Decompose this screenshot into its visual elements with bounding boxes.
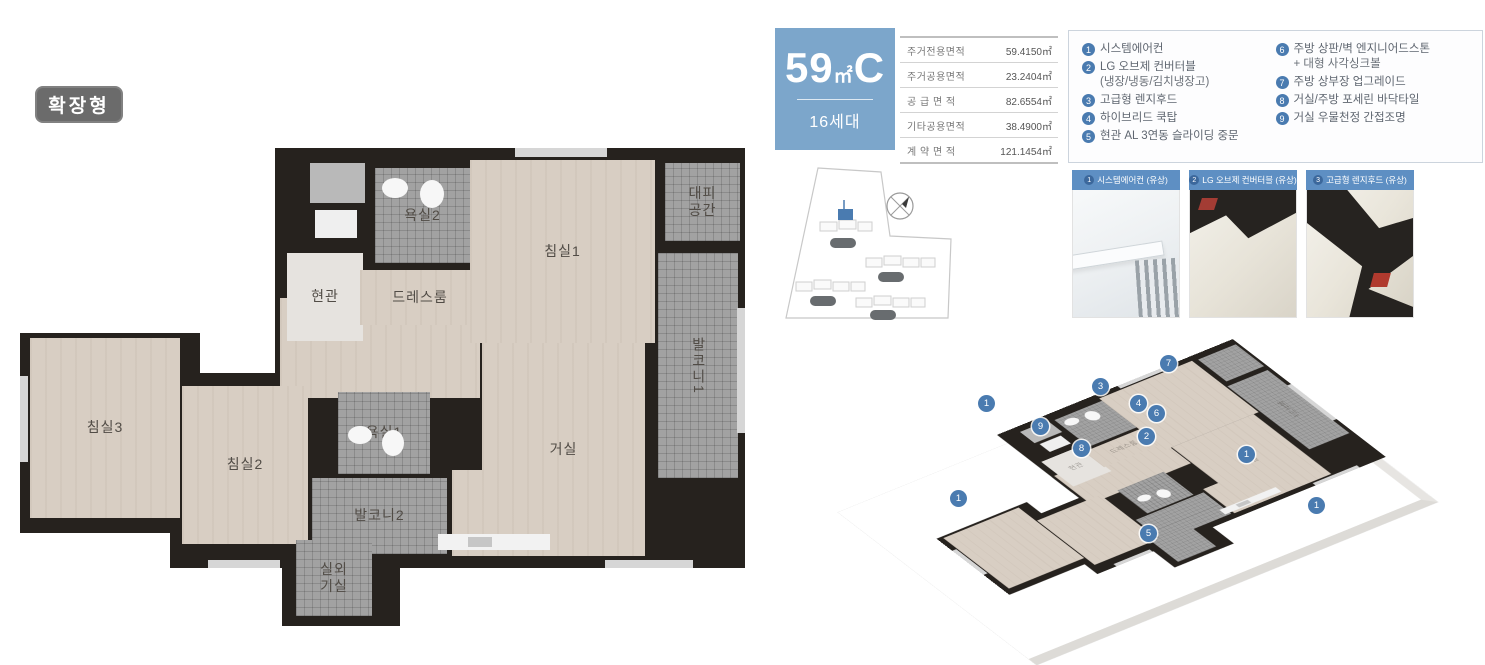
feature-number-badge: 5 (1082, 130, 1095, 143)
feature-line: 하이브리드 쿡탑 (1100, 111, 1177, 126)
thumbnail-photo (1306, 190, 1414, 318)
callout-badge: 5 (1140, 525, 1157, 542)
room-label: 욕실2 (404, 207, 441, 225)
room-label: 발코니1 (1274, 400, 1302, 419)
feature-number-badge: 1 (1082, 43, 1095, 56)
feature-item: 5현관 AL 3연동 슬라이딩 중문 (1082, 129, 1276, 144)
feature-text: 시스템에어컨 (1100, 42, 1163, 57)
fixture (468, 537, 492, 547)
callout-badge: 1 (950, 490, 967, 507)
area-label: 계 약 면 적 (900, 143, 991, 158)
feature-text: 고급형 렌지후드 (1100, 93, 1177, 108)
room-ac-room: 실외기실 (296, 540, 372, 616)
room-label-line: 발코니2 (354, 507, 404, 525)
room-label: 발코니1 (689, 337, 707, 395)
room-label-line: 발코니1 (1274, 400, 1302, 419)
fixture (315, 210, 357, 238)
feature-line: + 대형 사각싱크볼 (1294, 57, 1431, 72)
feature-line: 고급형 렌지후드 (1100, 93, 1177, 108)
feature-line: 거실 우물천정 간접조명 (1294, 111, 1406, 126)
feature-thumbnail: 2LG 오브제 컨버터블 (유상) (1189, 170, 1297, 318)
features-col-right: 6주방 상판/벽 엔지니어드스톤+ 대형 사각싱크볼7주방 상부장 업그레이드8… (1276, 42, 1470, 151)
feature-text: 현관 AL 3연동 슬라이딩 중문 (1100, 129, 1239, 144)
feature-number-badge: 2 (1082, 61, 1095, 74)
room-label: 실외기실 (320, 561, 348, 596)
area-label: 기타공용면적 (900, 118, 991, 133)
room-bedroom2: 침실2 (182, 386, 308, 544)
room-bedroom1: 침실1 (470, 160, 655, 343)
area-table-row: 주거공용면적23.2404㎡ (900, 63, 1058, 88)
fixture (515, 148, 607, 157)
feature-number-badge: 3 (1082, 94, 1095, 107)
fixture (348, 426, 372, 444)
feature-line: 거실/주방 포세린 바닥타일 (1294, 93, 1420, 108)
feature-line: 시스템에어컨 (1100, 42, 1163, 57)
callout-badge: 7 (1160, 355, 1177, 372)
feature-text: 거실 우물천정 간접조명 (1294, 111, 1406, 126)
floor-plan-2d: 현관욕실2드레스룸침실1대피공간발코니1침실3침실2욕실1발코니2실외기실주방거… (20, 148, 745, 626)
callout-badge: 1 (978, 395, 995, 412)
feature-line: 주방 상부장 업그레이드 (1294, 75, 1406, 90)
fixture (382, 178, 408, 198)
area-table-row: 계 약 면 적121.1454㎡ (900, 138, 1058, 162)
feature-thumbnail: 3고급형 렌지후드 (유상) (1306, 170, 1414, 318)
room-entrance: 현관 (287, 253, 363, 341)
highlighted-unit-marker (838, 209, 853, 220)
room-balcony1: 발코니1 (658, 253, 738, 478)
feature-line: LG 오브제 컨버터블 (1100, 60, 1209, 75)
room-label-line: 욕실2 (404, 207, 441, 225)
room-label-line: 실외 (320, 561, 348, 579)
room-label: 침실3 (87, 419, 124, 437)
features-col-left: 1시스템에어컨2LG 오브제 컨버터블(냉장/냉동/김치냉장고)3고급형 렌지후… (1082, 42, 1276, 151)
feature-thumbnail: 1시스템에어컨 (유상) (1072, 170, 1180, 318)
fixture (20, 376, 28, 462)
feature-text: LG 오브제 컨버터블(냉장/냉동/김치냉장고) (1100, 60, 1209, 90)
area-table-row: 공 급 면 적82.6554㎡ (900, 88, 1058, 113)
feature-text: 주방 상판/벽 엔지니어드스톤+ 대형 사각싱크볼 (1294, 42, 1431, 72)
room-label-line: 침실3 (87, 419, 124, 437)
site-boundary (786, 168, 951, 318)
compass-icon (887, 193, 913, 219)
feature-text: 주방 상부장 업그레이드 (1294, 75, 1406, 90)
thumbnail-photo (1189, 190, 1297, 318)
fixture (605, 560, 693, 568)
callout-badge: 8 (1073, 440, 1090, 457)
room-label: 침실2 (227, 456, 264, 474)
feature-text: 거실/주방 포세린 바닥타일 (1294, 93, 1420, 108)
thumbnail-number-badge: 3 (1313, 175, 1323, 185)
thumbnail-photo (1072, 190, 1180, 318)
feature-item: 6주방 상판/벽 엔지니어드스톤+ 대형 사각싱크볼 (1276, 42, 1470, 72)
area-table-row: 기타공용면적38.4900㎡ (900, 113, 1058, 138)
area-label: 공 급 면 적 (900, 93, 991, 108)
area-table: 주거전용면적59.4150㎡주거공용면적23.2404㎡공 급 면 적82.65… (900, 36, 1058, 164)
room-label: 침실1 (544, 243, 581, 261)
room-label-line: 대피 (689, 185, 717, 203)
feature-item: 3고급형 렌지후드 (1082, 93, 1276, 108)
room-label-line: 현관 (311, 288, 339, 306)
room-label-line: 침실1 (544, 243, 581, 261)
feature-line: (냉장/냉동/김치냉장고) (1100, 75, 1209, 90)
room-label: 드레스룸 (1108, 440, 1140, 455)
feature-item: 4하이브리드 쿡탑 (1082, 111, 1276, 126)
room-label-line: 침실2 (227, 456, 264, 474)
unit-type-title: 59㎡C (785, 47, 885, 89)
household-count: 16세대 (809, 108, 860, 132)
feature-panel: 1시스템에어컨2LG 오브제 컨버터블(냉장/냉동/김치냉장고)3고급형 렌지후… (1068, 30, 1483, 163)
room-label: 드레스룸 (392, 289, 448, 307)
room-label-line: 드레스룸 (392, 289, 448, 307)
fixture (382, 430, 404, 456)
thumbnail-label: 1시스템에어컨 (유상) (1072, 170, 1180, 190)
area-table-row: 주거전용면적59.4150㎡ (900, 38, 1058, 63)
feature-line: 주방 상판/벽 엔지니어드스톤 (1294, 42, 1431, 57)
thumbnail-label: 3고급형 렌지후드 (유상) (1306, 170, 1414, 190)
fixture (310, 163, 365, 203)
area-label: 주거공용면적 (900, 68, 991, 83)
thumbnail-label: 2LG 오브제 컨버터블 (유상) (1189, 170, 1297, 190)
room-refuge: 대피공간 (665, 163, 740, 241)
room-label-line: 발코니1 (689, 337, 707, 395)
area-label: 주거전용면적 (900, 43, 991, 58)
feature-item: 7주방 상부장 업그레이드 (1276, 75, 1470, 90)
fixture (208, 560, 280, 568)
floor-plan-3d: 현관드레스룸발코니1거실 193746281511 (845, 300, 1430, 660)
callout-badge: 2 (1138, 428, 1155, 445)
room-label: 발코니2 (354, 507, 404, 525)
expansion-type-badge: 확장형 (35, 86, 123, 123)
room-label-line: 공간 (689, 202, 717, 220)
fixture (420, 180, 444, 208)
unit-type-box: 59㎡C 16세대 (775, 28, 895, 150)
callout-badge: 3 (1092, 378, 1109, 395)
room-label-line: 드레스룸 (1108, 440, 1140, 455)
room-living: 거실 (482, 343, 645, 556)
area-value: 59.4150㎡ (991, 43, 1058, 58)
feature-item: 8거실/주방 포세린 바닥타일 (1276, 93, 1470, 108)
room-label-line: 기실 (320, 578, 348, 596)
feature-item: 1시스템에어컨 (1082, 42, 1276, 57)
thumbnail-number-badge: 1 (1084, 175, 1094, 185)
callout-badge: 1 (1238, 446, 1255, 463)
room-label: 대피공간 (689, 185, 717, 220)
room-label-line: 거실 (550, 441, 578, 459)
room-label: 거실 (550, 441, 578, 459)
room-label: 현관 (311, 288, 339, 306)
thumbnail-label-text: 시스템에어컨 (유상) (1097, 174, 1168, 186)
area-value: 23.2404㎡ (991, 68, 1058, 83)
feature-number-badge: 9 (1276, 112, 1289, 125)
brochure-page: 확장형 현관욕실2드레스룸침실1대피공간발코니1침실3침실2욕실1발코니2실외기… (0, 0, 1485, 665)
feature-line: 현관 AL 3연동 슬라이딩 중문 (1100, 129, 1239, 144)
divider (797, 99, 873, 100)
callout-badge: 1 (1308, 497, 1325, 514)
area-value: 38.4900㎡ (991, 118, 1058, 133)
callout-badge: 4 (1130, 395, 1147, 412)
room-label-line: 현관 (1066, 462, 1085, 472)
room-dressroom: 드레스룸 (360, 270, 480, 325)
callout-badge: 6 (1148, 405, 1165, 422)
feature-item: 2LG 오브제 컨버터블(냉장/냉동/김치냉장고) (1082, 60, 1276, 90)
thumbnail-number-badge: 2 (1189, 175, 1199, 185)
fixture (737, 308, 745, 433)
room-bedroom3: 침실3 (30, 338, 180, 518)
feature-number-badge: 7 (1276, 76, 1289, 89)
thumbnail-label-text: 고급형 렌지후드 (유상) (1326, 174, 1407, 186)
callout-badge: 9 (1032, 418, 1049, 435)
feature-text: 하이브리드 쿡탑 (1100, 111, 1177, 126)
room-label: 현관 (1066, 462, 1085, 472)
area-value: 82.6554㎡ (991, 93, 1058, 108)
thumbnails: 1시스템에어컨 (유상)2LG 오브제 컨버터블 (유상)3고급형 렌지후드 (… (1072, 170, 1414, 318)
thumbnail-label-text: LG 오브제 컨버터블 (유상) (1202, 174, 1296, 186)
feature-item: 9거실 우물천정 간접조명 (1276, 111, 1470, 126)
fixture (438, 534, 550, 550)
feature-number-badge: 6 (1276, 43, 1289, 56)
feature-number-badge: 8 (1276, 94, 1289, 107)
area-value: 121.1454㎡ (991, 143, 1058, 158)
feature-number-badge: 4 (1082, 112, 1095, 125)
